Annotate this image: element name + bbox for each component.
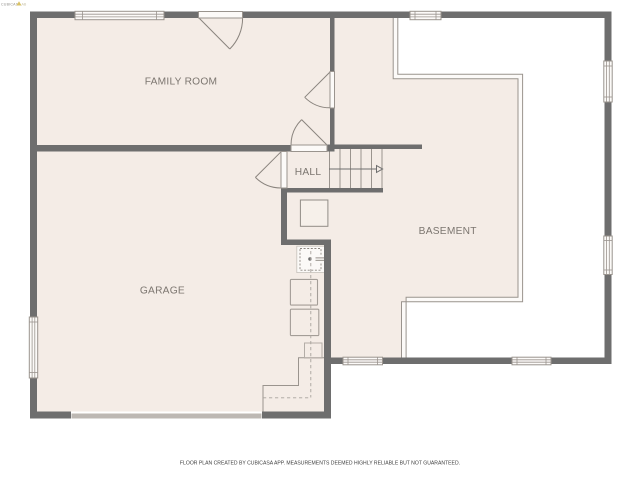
svg-text:GARAGE: GARAGE <box>140 286 185 297</box>
svg-text:FAMILY ROOM: FAMILY ROOM <box>145 77 218 88</box>
svg-text:BASEMENT: BASEMENT <box>419 226 477 237</box>
svg-text:AB: AB <box>22 3 27 7</box>
svg-text:HALL: HALL <box>295 167 322 178</box>
svg-text:FLOOR PLAN CREATED BY CUBICASA: FLOOR PLAN CREATED BY CUBICASA APP. MEAS… <box>180 461 460 467</box>
